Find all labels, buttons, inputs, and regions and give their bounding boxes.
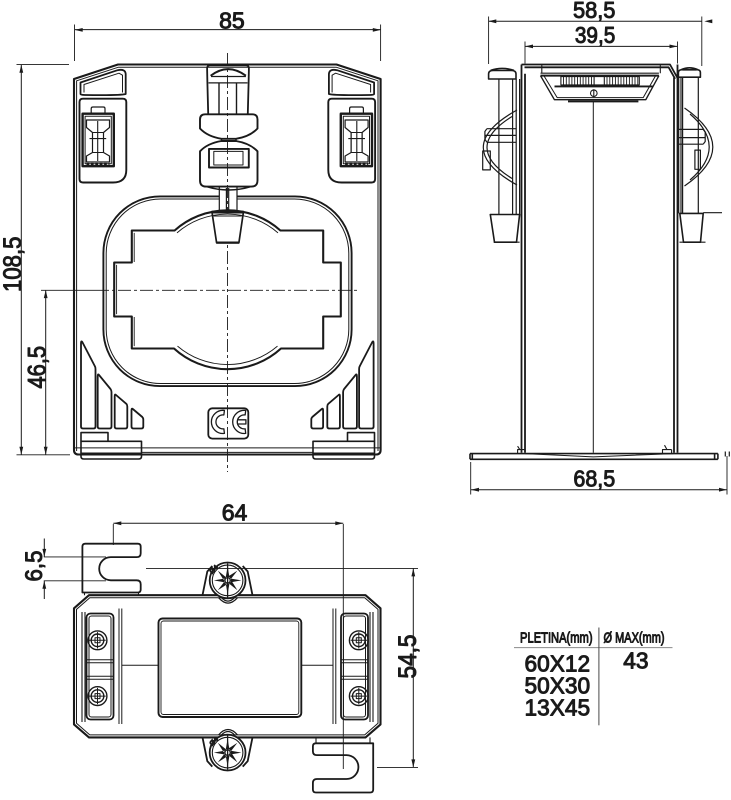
- svg-text:108,5: 108,5: [0, 237, 27, 292]
- svg-text:6,5: 6,5: [21, 551, 48, 582]
- svg-text:43: 43: [623, 647, 648, 673]
- svg-text:58,5: 58,5: [573, 0, 615, 23]
- svg-text:Ø MAX(mm): Ø MAX(mm): [604, 630, 665, 646]
- svg-text:46,5: 46,5: [23, 346, 51, 389]
- svg-text:85: 85: [219, 7, 245, 33]
- svg-text:54,5: 54,5: [394, 635, 422, 679]
- svg-text:39,5: 39,5: [575, 22, 615, 48]
- svg-text:64: 64: [222, 499, 248, 525]
- svg-text:PLETINA(mm): PLETINA(mm): [520, 630, 593, 646]
- svg-text:68,5: 68,5: [573, 465, 615, 491]
- svg-text:13X45: 13X45: [525, 695, 591, 721]
